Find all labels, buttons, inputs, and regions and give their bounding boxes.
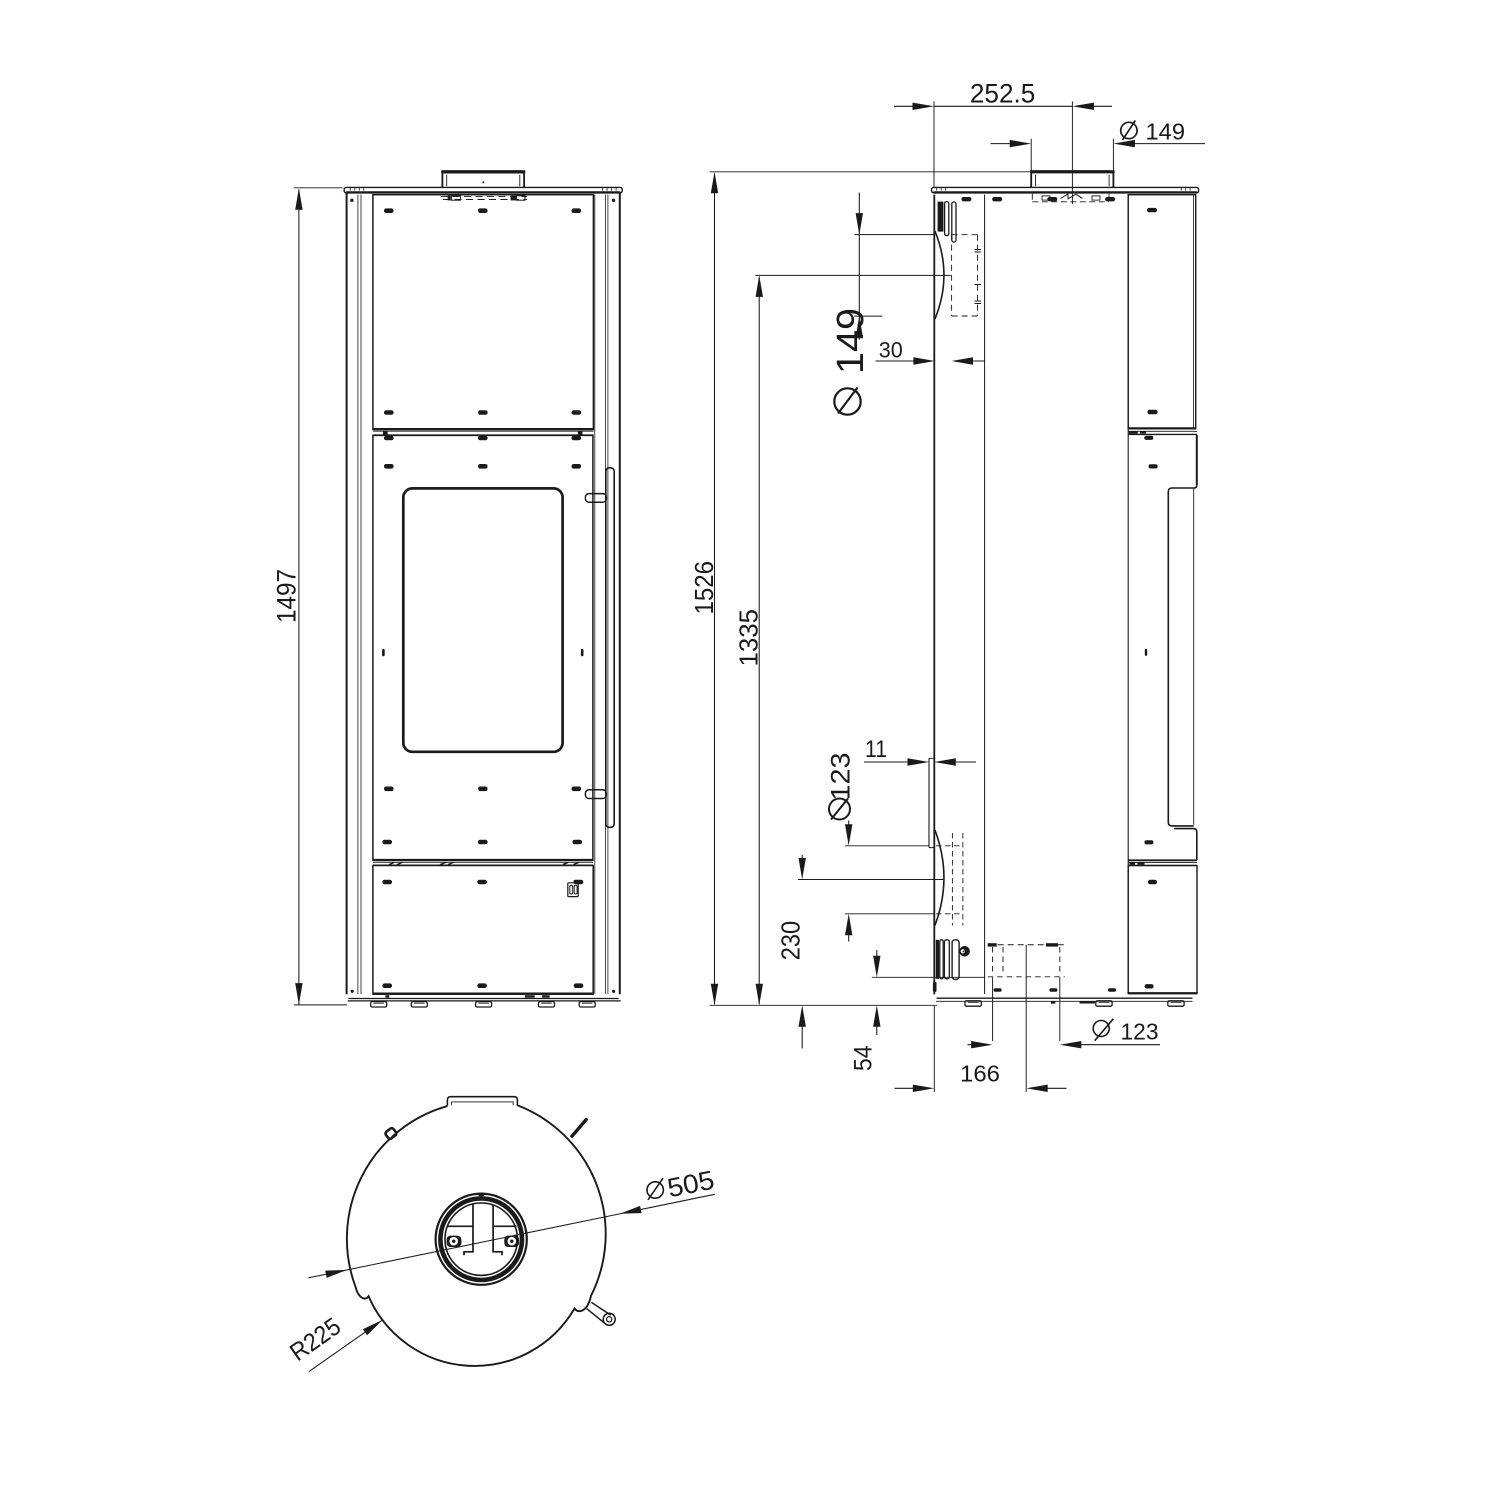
svg-text:149: 149 — [830, 308, 872, 374]
svg-text:1526: 1526 — [691, 561, 719, 615]
svg-text:11: 11 — [865, 736, 887, 763]
svg-text:166: 166 — [960, 1061, 1000, 1087]
svg-text:149: 149 — [1146, 119, 1186, 145]
svg-text:1335: 1335 — [736, 609, 764, 667]
svg-text:1497: 1497 — [272, 569, 302, 623]
svg-text:123: 123 — [1121, 1019, 1159, 1045]
svg-text:252.5: 252.5 — [970, 79, 1036, 109]
svg-text:54: 54 — [849, 1045, 877, 1071]
svg-text:123: 123 — [826, 753, 856, 801]
svg-text:30: 30 — [879, 338, 903, 363]
svg-text:230: 230 — [776, 921, 806, 961]
